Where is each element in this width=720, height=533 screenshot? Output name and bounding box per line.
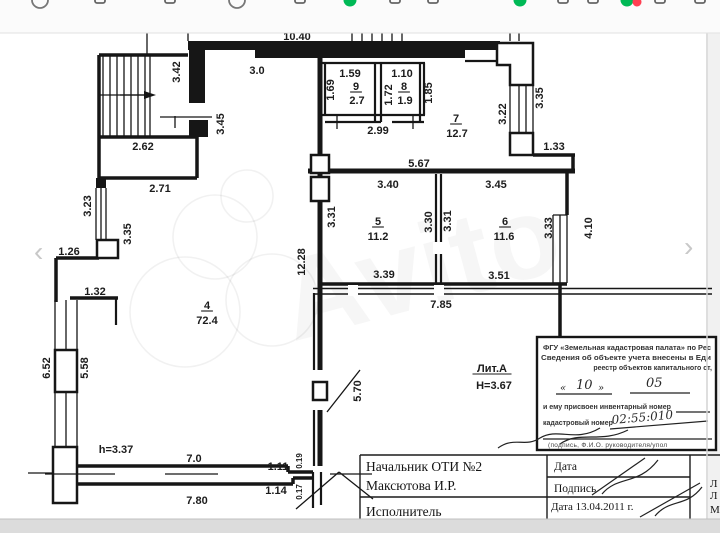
- stamp-quote-open: «: [560, 383, 566, 394]
- pier: [55, 350, 77, 392]
- dimension-label: 3.22: [497, 103, 509, 124]
- dimension-label: 7.80: [186, 495, 207, 507]
- stamp-quote-close: »: [598, 383, 604, 394]
- dimension-label: 1.26: [58, 246, 79, 258]
- dimension-label: 1.59: [339, 68, 360, 80]
- dimension-label: 72.4: [196, 315, 218, 327]
- dimension-label: 12.28: [296, 248, 308, 276]
- room-number-label: Лит.А: [477, 363, 507, 375]
- door-jamb: [313, 382, 327, 400]
- officer-title: Начальник ОТИ №2: [366, 459, 482, 474]
- dimension-label: 3.0: [249, 65, 264, 77]
- dimension-label: 1.85: [423, 82, 435, 103]
- dimension-label: 1.10: [391, 68, 412, 80]
- pier: [510, 133, 533, 155]
- stamp-line1: ФГУ «Земельная кадастровая палата» по Ре…: [543, 345, 711, 352]
- gallery-next-button[interactable]: ›: [684, 231, 693, 262]
- pier: [311, 155, 329, 173]
- door-opening: [434, 285, 444, 296]
- dimension-label: H=3.67: [476, 380, 512, 392]
- dimension-label: 3.45: [485, 179, 506, 191]
- room-number-label: 8: [401, 81, 407, 93]
- dimension-label: 3.33: [543, 217, 555, 238]
- officer-name: Максютова И.Р.: [366, 478, 456, 493]
- dimension-label: 5.58: [79, 357, 91, 378]
- signature-cell-label: Подпись: [554, 483, 596, 495]
- pier: [311, 177, 329, 201]
- dimension-label: 3.35: [534, 87, 546, 108]
- room-number-label: 5: [375, 216, 381, 228]
- dimension-label: 1.11: [268, 461, 289, 473]
- door-opening: [348, 285, 358, 296]
- dimension-label: 1.9: [397, 95, 412, 107]
- side-letter: Л: [710, 478, 718, 490]
- side-letter: Л: [710, 490, 718, 502]
- dimension-label: 12.7: [446, 128, 467, 140]
- stamp-line2: Сведения об объекте учета внесены в Еди: [541, 354, 711, 362]
- dimension-label: h=3.37: [99, 444, 134, 456]
- dimension-label: 1.72: [383, 84, 395, 105]
- stamp-line3: реестр объектов капитального ст,: [593, 364, 712, 372]
- dimension-label: 1.14: [265, 485, 287, 497]
- dimension-label: 4.10: [583, 217, 595, 238]
- executor-label: Исполнитель: [366, 504, 442, 519]
- dimension-label: 3.35: [122, 223, 134, 244]
- floorplan-photo-viewer: Avito: [0, 0, 720, 533]
- room-number-label: 7: [453, 113, 459, 125]
- date2-cell-label: Дата 13.04.2011 г.: [551, 501, 634, 513]
- dimension-label: 3.51: [488, 270, 509, 282]
- dimension-label: 3.40: [377, 179, 398, 191]
- pier: [97, 240, 118, 258]
- dimension-label: 3.39: [373, 269, 394, 281]
- dimension-label: 2.62: [132, 141, 153, 153]
- dimension-label: 5.70: [352, 380, 364, 401]
- dimension-label: 3.23: [82, 195, 94, 216]
- dimension-label: 1.69: [325, 79, 337, 100]
- dimension-label: 7.0: [186, 453, 201, 465]
- dimension-label: 5.67: [408, 158, 429, 170]
- dimension-label: 0.19: [295, 453, 304, 469]
- gallery-prev-button[interactable]: ‹: [34, 236, 43, 267]
- date-cell-label: Дата: [554, 461, 577, 473]
- stamp-line5: кадастровый номер: [543, 419, 613, 427]
- door-opening: [433, 242, 443, 254]
- dimension-label: 3.31: [326, 206, 338, 227]
- top-toolbar-strip: [0, 0, 720, 33]
- dimension-label: 3.42: [171, 61, 183, 82]
- stamp-handwritten-month: 05: [646, 376, 663, 391]
- room-number-label: 4: [204, 300, 211, 312]
- dimension-label: 3.31: [442, 210, 454, 231]
- dimension-label: 2.71: [149, 183, 170, 195]
- dimension-label: 11.2: [368, 231, 389, 243]
- dimension-label: 3.45: [215, 113, 227, 134]
- dimension-label: 6.52: [41, 357, 53, 378]
- dimension-label: 7.85: [430, 299, 451, 311]
- dimension-label: 2.99: [367, 125, 388, 137]
- dimension-label: 1.32: [84, 286, 105, 298]
- room-number-label: 6: [502, 216, 508, 228]
- dimension-label: 11.6: [494, 231, 515, 243]
- dimension-label: 2.7: [349, 95, 364, 107]
- bottom-strip: [0, 519, 720, 533]
- stamp-handwritten-day: 10: [576, 378, 593, 393]
- dimension-label: 1.33: [543, 141, 564, 153]
- side-letter: М: [710, 504, 720, 516]
- room-number-label: 9: [353, 81, 359, 93]
- stamp-line6: (подпись, Ф.И.О. руководителя/упол: [548, 442, 668, 449]
- corner-pier: [53, 447, 77, 503]
- dimension-label: 0.17: [295, 484, 304, 500]
- dimension-label: 3.30: [423, 211, 435, 232]
